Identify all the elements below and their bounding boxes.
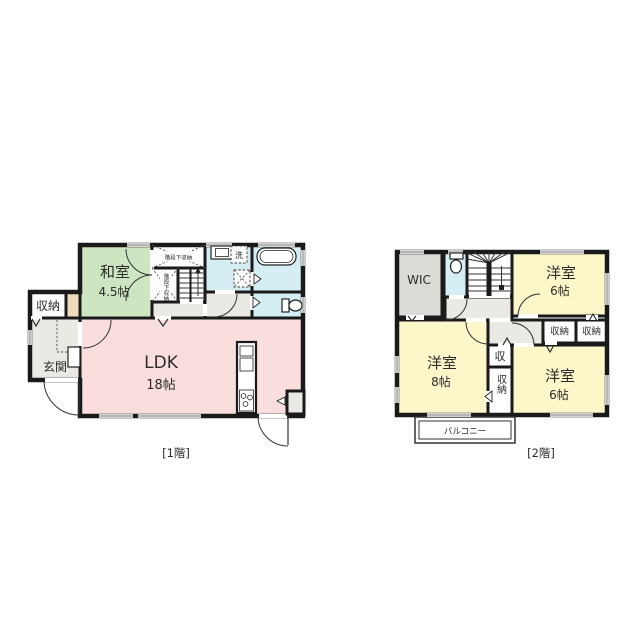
floor2-plan: WIC 洋室 6帖 収納 収納 洋室 8帖 収 収納 洋室 6帖 バルコニー [… — [395, 250, 609, 460]
floorplan-page: 和室 4.5帖 LDK 18帖 収納 玄関 階段下収納 階段下収納 洗 [1階] — [0, 0, 640, 640]
genkan-label: 玄関 — [43, 359, 67, 374]
floor1-label: [1階] — [162, 446, 190, 460]
bedroom-se-size-label: 6帖 — [549, 387, 569, 402]
floorplan-canvas: 和室 4.5帖 LDK 18帖 収納 玄関 階段下収納 階段下収納 洗 [1階] — [0, 0, 640, 640]
room-hall-1f-b — [205, 292, 252, 318]
understairs-side-label: 階段下収納 — [163, 272, 170, 302]
toilet-2f-fixtures — [450, 253, 463, 273]
toilet-1f-fixtures — [282, 299, 302, 312]
closet-tall-label: 収納 — [495, 374, 507, 395]
understairs-top-label: 階段下収納 — [165, 254, 193, 262]
room-ldk — [80, 318, 303, 416]
floor1-plan: 和室 4.5帖 LDK 18帖 収納 玄関 階段下収納 階段下収納 洗 [1階] — [28, 243, 305, 460]
room-tokonoma-strip — [66, 292, 80, 318]
toilet-tank-2f — [450, 253, 463, 259]
room-washitsu — [80, 245, 152, 318]
wic-label: WIC — [407, 273, 431, 287]
bedroom-w-label: 洋室 — [427, 354, 457, 372]
bath-fixtures — [257, 248, 296, 265]
bedroom-w-size-label: 8帖 — [431, 374, 451, 389]
genkan-step-box — [68, 347, 80, 367]
ldk-label: LDK — [144, 353, 179, 373]
ldk-size-label: 18帖 — [146, 378, 176, 393]
stairs-down-arrow — [499, 285, 504, 290]
pantry-box — [287, 391, 304, 414]
closet-a-label: 収納 — [550, 326, 569, 338]
closet-small-label: 収 — [495, 350, 506, 363]
room-hall-1f-a — [152, 302, 205, 318]
washitsu-label: 和室 — [100, 263, 130, 281]
front-door-arc — [44, 380, 79, 415]
toilet-tank-1f — [282, 299, 289, 312]
bedroom-ne-size-label: 6帖 — [550, 283, 570, 298]
toilet-bowl-1f — [289, 300, 302, 311]
toilet-bowl-2f — [451, 260, 462, 273]
laundry-label: 洗 — [235, 250, 243, 260]
closet-b-label: 収納 — [582, 326, 601, 338]
balcony-label: バルコニー — [444, 427, 486, 437]
room-hall-2f-a — [445, 297, 512, 320]
floor2-label: [2階] — [527, 446, 555, 460]
laundry-pan — [234, 270, 250, 287]
washitsu-size-label: 4.5帖 — [98, 284, 129, 299]
storage-1f-label: 収納 — [36, 299, 60, 313]
back-door-arc — [258, 416, 288, 446]
bedroom-ne-label: 洋室 — [546, 264, 576, 282]
bedroom-se-label: 洋室 — [545, 367, 575, 385]
